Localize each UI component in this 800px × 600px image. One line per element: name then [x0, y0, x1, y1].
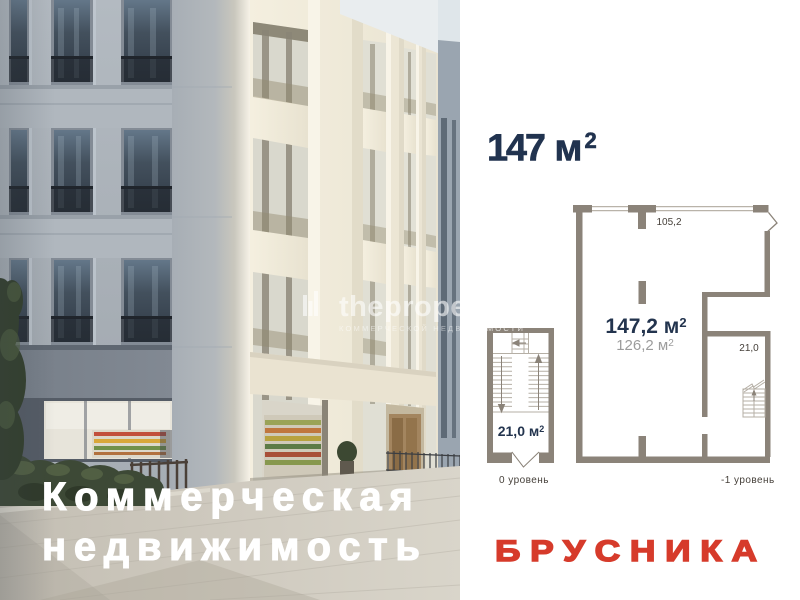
svg-text:21,0: 21,0 — [739, 343, 759, 354]
svg-text:105,2: 105,2 — [656, 217, 681, 228]
svg-text:126,2 м2: 126,2 м2 — [616, 337, 674, 354]
svg-text:theproperty: theproperty — [339, 291, 460, 323]
svg-text:21,0 м2: 21,0 м2 — [498, 423, 545, 439]
svg-text:147,2 м2: 147,2 м2 — [605, 315, 686, 338]
svg-text:КОММЕРЧЕСКОЙ НЕДВИЖИМОСТИ: КОММЕРЧЕСКОЙ НЕДВИЖИМОСТИ — [460, 324, 525, 333]
svg-text:КОММЕРЧЕСКОЙ НЕДВИЖИМОСТИ: КОММЕРЧЕСКОЙ НЕДВИЖИМОСТИ — [339, 324, 460, 333]
